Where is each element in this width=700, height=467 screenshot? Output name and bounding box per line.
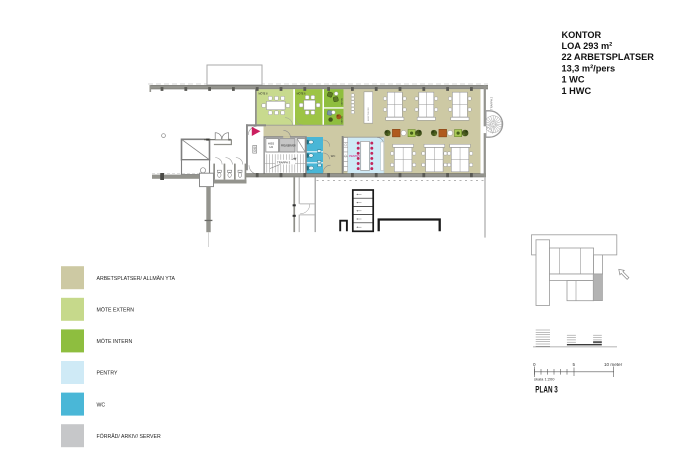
svg-text:WC: WC (331, 154, 336, 158)
svg-text:MÖTE 6: MÖTE 6 (297, 92, 307, 95)
svg-text:TRAPPA 3: TRAPPA 3 (277, 160, 291, 164)
svg-text:LOA 293 m²: LOA 293 m² (562, 41, 613, 51)
svg-text:PENTRY: PENTRY (97, 371, 118, 377)
svg-text:skala 1:200: skala 1:200 (534, 377, 555, 382)
svg-text:5: 5 (573, 362, 576, 367)
svg-text:HISS: HISS (268, 142, 274, 146)
svg-text:1 WC: 1 WC (562, 75, 585, 85)
svg-text:FÖRRÅD/ ARKIV/ SERVER: FÖRRÅD/ ARKIV/ SERVER (97, 433, 161, 440)
svg-text:1 HWC: 1 HWC (562, 86, 592, 96)
svg-text:ARBETSBORD: ARBETSBORD (367, 107, 370, 121)
svg-text:SAMTAL: SAMTAL (340, 98, 343, 105)
svg-text:PENTRY: PENTRY (349, 154, 360, 158)
svg-text:TRAPPA 2: TRAPPA 2 (490, 96, 494, 110)
svg-text:SAMTAL: SAMTAL (340, 116, 343, 123)
svg-text:PLAN 3: PLAN 3 (535, 385, 558, 395)
svg-text:22 ARBETSPLATSER: 22 ARBETSPLATSER (562, 52, 655, 62)
svg-text:10 meter: 10 meter (604, 362, 623, 367)
svg-text:MÖTE EXTERN: MÖTE EXTERN (97, 307, 135, 314)
svg-text:13,3 m²/pers: 13,3 m²/pers (562, 63, 616, 73)
svg-text:FRD/SERVER: FRD/SERVER (281, 145, 296, 147)
svg-text:KONTOR: KONTOR (562, 30, 602, 40)
svg-text:0: 0 (533, 362, 536, 367)
svg-text:MÖTE 8: MÖTE 8 (259, 92, 269, 95)
svg-text:MÖTE INTERN: MÖTE INTERN (97, 338, 133, 345)
svg-text:WC: WC (97, 402, 106, 408)
svg-text:H3: H3 (270, 145, 274, 149)
svg-text:ARBETSPLATSER/ ALLMÄN YTA: ARBETSPLATSER/ ALLMÄN YTA (97, 275, 176, 282)
